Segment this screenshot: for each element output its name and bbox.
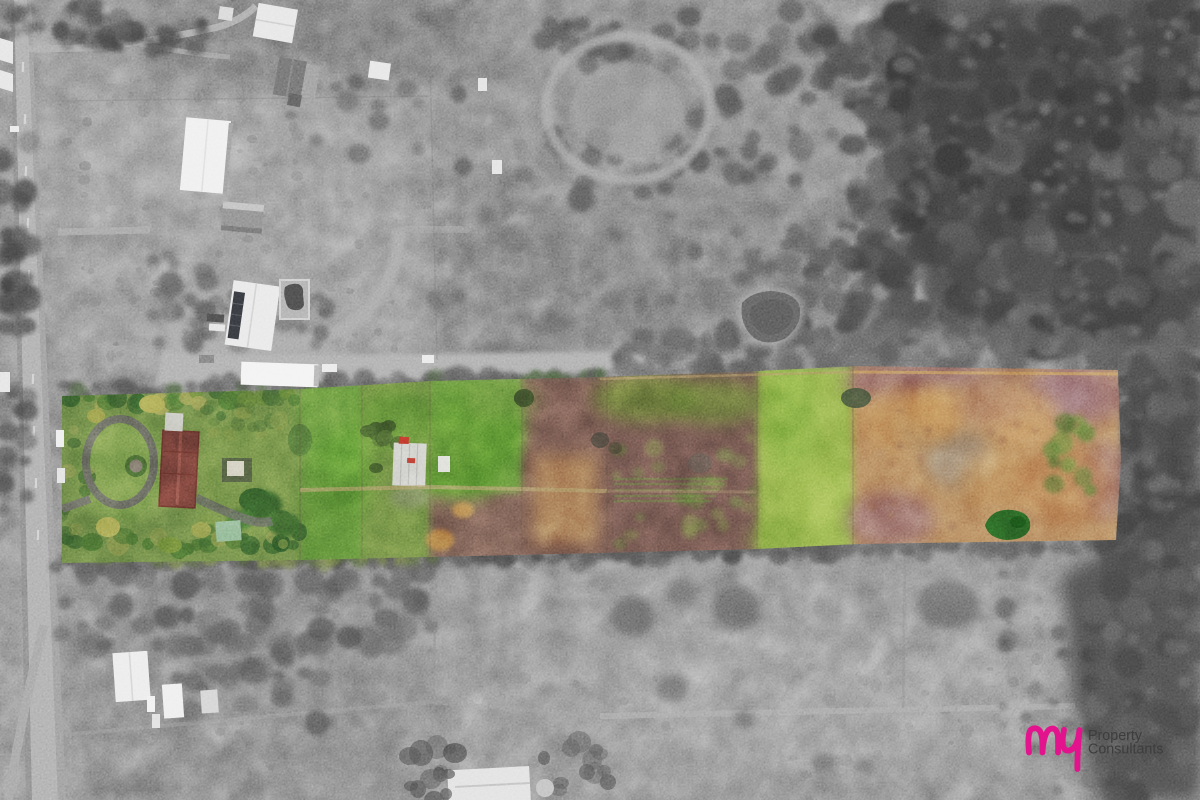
svg-text:Consultants: Consultants <box>1088 742 1164 758</box>
